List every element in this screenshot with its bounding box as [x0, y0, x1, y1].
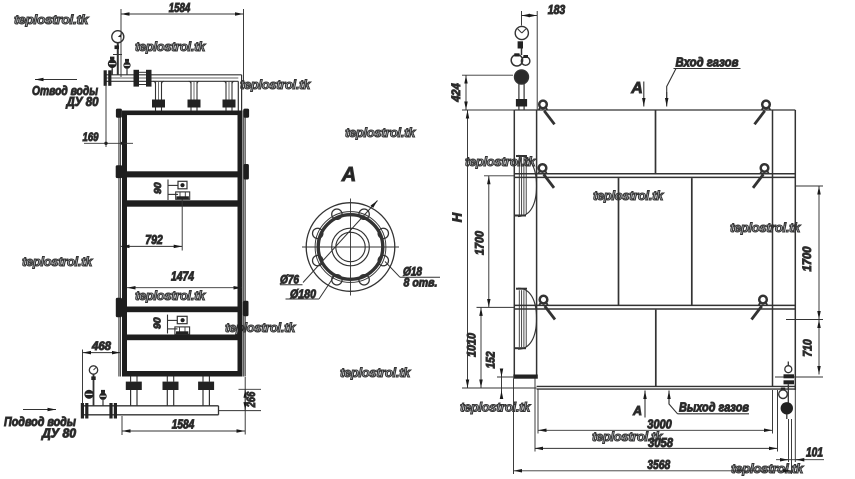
svg-text:152: 152: [486, 351, 498, 369]
svg-text:teplostroi.tk: teplostroi.tk: [593, 189, 664, 203]
svg-text:101: 101: [806, 446, 823, 460]
svg-text:teplostroi.tk: teplostroi.tk: [730, 221, 801, 235]
svg-text:teplostroi.tk: teplostroi.tk: [345, 126, 416, 140]
svg-text:Вход газов: Вход газов: [676, 55, 739, 70]
svg-text:183: 183: [548, 3, 566, 17]
svg-text:A: A: [630, 80, 643, 97]
svg-text:90: 90: [152, 317, 164, 329]
svg-text:792: 792: [145, 233, 163, 247]
svg-text:1584: 1584: [169, 1, 191, 15]
svg-text:teplostroi.tk: teplostroi.tk: [14, 13, 89, 27]
svg-text:710: 710: [803, 339, 815, 357]
svg-text:3568: 3568: [647, 457, 671, 472]
svg-text:teplostroi.tk: teplostroi.tk: [135, 40, 206, 54]
svg-text:teplostroi.tk: teplostroi.tk: [460, 401, 531, 415]
svg-text:1010: 1010: [467, 332, 479, 357]
svg-text:3000: 3000: [647, 416, 672, 431]
svg-text:8 отв.: 8 отв.: [404, 276, 438, 290]
svg-text:teplostroi.tk: teplostroi.tk: [240, 78, 311, 92]
svg-text:3058: 3058: [648, 435, 674, 450]
svg-text:90: 90: [152, 182, 164, 194]
svg-text:468: 468: [91, 339, 111, 353]
svg-text:teplostroi.tk: teplostroi.tk: [225, 321, 296, 335]
svg-text:teplostroi.tk: teplostroi.tk: [340, 366, 411, 380]
svg-text:266: 266: [246, 391, 258, 408]
svg-text:1584: 1584: [172, 418, 195, 432]
svg-text:ДУ 80: ДУ 80: [66, 95, 99, 109]
svg-text:1700: 1700: [802, 246, 814, 272]
svg-text:1474: 1474: [171, 270, 194, 284]
svg-text:A: A: [341, 164, 356, 186]
svg-text:A: A: [632, 404, 642, 418]
svg-text:1700: 1700: [475, 230, 487, 255]
svg-text:169: 169: [83, 130, 99, 144]
svg-text:teplostroi.tk: teplostroi.tk: [135, 289, 206, 303]
svg-text:teplostroi.tk: teplostroi.tk: [731, 462, 804, 476]
svg-text:Выход газов: Выход газов: [679, 400, 749, 415]
svg-text:H: H: [450, 212, 465, 222]
svg-text:424: 424: [449, 83, 463, 103]
svg-text:ДУ 80: ДУ 80: [41, 427, 76, 441]
svg-text:teplostroi.tk: teplostroi.tk: [22, 255, 93, 269]
